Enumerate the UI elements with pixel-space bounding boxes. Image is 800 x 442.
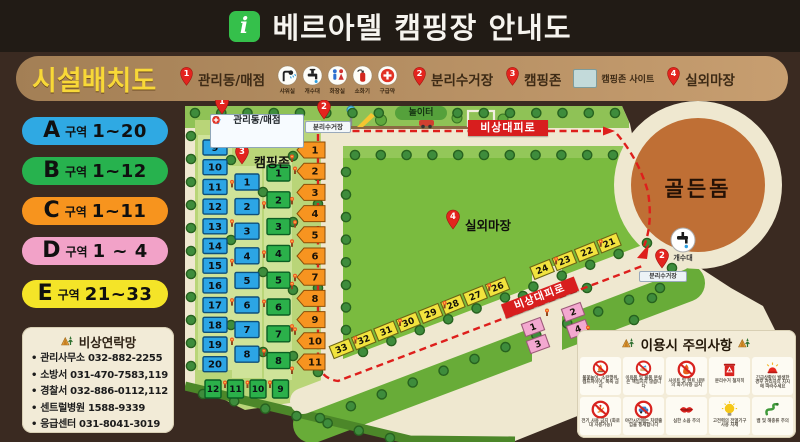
svg-text:1: 1 bbox=[244, 178, 251, 189]
site-sample-label: 캠핑존 사이트 bbox=[601, 72, 654, 85]
zone-suffix: 구역 bbox=[65, 123, 87, 140]
caution-caption: 고전력의 전열기구 사용 자제 bbox=[710, 419, 748, 428]
facility-item: 화장실 bbox=[325, 65, 349, 95]
zone-key-item-C: C구역1~11 bbox=[22, 197, 168, 225]
svg-text:11: 11 bbox=[208, 182, 222, 193]
no-fireworks-icon bbox=[591, 400, 610, 419]
recycle-station-top-label: 분리수거장 bbox=[305, 121, 351, 133]
map-pin-icon: 1 bbox=[179, 66, 194, 86]
zone-range: 1 ~ 4 bbox=[93, 241, 148, 262]
legend-heading: 시설배치도 bbox=[32, 56, 156, 101]
quiet-icon bbox=[677, 400, 696, 419]
svg-text:11: 11 bbox=[229, 385, 242, 395]
svg-text:7: 7 bbox=[244, 325, 251, 336]
map-pin-icon: 3 bbox=[505, 66, 520, 86]
facility-item: 개수대 bbox=[300, 65, 324, 95]
zone-letter: A bbox=[43, 120, 60, 142]
caution-item: 긴급상황이 발생한 경우 관리자의 지시에 따라주세요 bbox=[752, 357, 793, 395]
caution-caption: 불꽃놀이, 소란행위, 캠프파이어, 폭죽 금지 bbox=[581, 376, 619, 389]
svg-text:19: 19 bbox=[208, 340, 222, 351]
zone-letter: E bbox=[38, 283, 53, 305]
caution-caption: 긴급상황이 발생한 경우 관리자의 지시에 따라주세요 bbox=[753, 376, 791, 389]
svg-text:8: 8 bbox=[312, 294, 319, 305]
contact-list: • 관리사무소 032-882-2255• 소방서 031-470-7583,1… bbox=[22, 351, 174, 434]
legend-facility-icons: 샤워실 개수대 화장실 소화기 구급약 bbox=[275, 65, 400, 95]
office-box: 관리동/매점 bbox=[210, 114, 302, 146]
svg-text:20: 20 bbox=[208, 360, 222, 371]
zone-key-item-A: A구역1~20 bbox=[22, 117, 168, 145]
zone-range: 1~20 bbox=[92, 121, 147, 142]
svg-text:17: 17 bbox=[208, 301, 222, 312]
sink-icon bbox=[302, 65, 323, 86]
title-bar: i 베르아델 캠핑장 안내도 bbox=[0, 0, 800, 52]
svg-text:14: 14 bbox=[208, 242, 222, 253]
caution-item: 뱀 및 해충류 주의 bbox=[752, 397, 793, 435]
recycle-bin-icon bbox=[720, 360, 739, 379]
svg-text:10: 10 bbox=[308, 336, 322, 347]
legend-pin-item: 4실외마장 bbox=[666, 66, 735, 90]
svg-text:16: 16 bbox=[208, 281, 222, 292]
svg-text:4: 4 bbox=[275, 249, 282, 260]
site-4: 4 bbox=[235, 248, 259, 264]
campground-sign: i 베르아델 캠핑장 안내도 시설배치도 1관리동/매점 샤워실 개수대 화장실… bbox=[0, 0, 800, 442]
first-aid-icon bbox=[377, 65, 398, 86]
info-icon: i bbox=[229, 11, 260, 42]
site-10: 10 bbox=[250, 380, 266, 398]
legend-pin-item: 1관리동/매점 bbox=[179, 66, 265, 90]
map-pin-icon: 4 bbox=[666, 66, 681, 86]
emergency-contacts-panel: 비상연락망 • 관리사무소 032-882-2255• 소방서 031-470-… bbox=[22, 327, 174, 433]
recycle-top-text: 분리수거장 bbox=[305, 121, 351, 133]
zone-suffix: 구역 bbox=[66, 243, 88, 260]
contact-item: • 경찰서 032-886-0112,112 bbox=[31, 384, 174, 401]
site-14: 14 bbox=[203, 239, 227, 254]
svg-text:6: 6 bbox=[244, 301, 251, 312]
site-2: 2 bbox=[267, 192, 290, 208]
svg-text:1: 1 bbox=[219, 100, 225, 107]
svg-text:2: 2 bbox=[417, 68, 423, 78]
site-11: 11 bbox=[203, 179, 227, 194]
svg-text:5: 5 bbox=[244, 276, 251, 287]
campzone-label: 캠핑존 bbox=[254, 152, 290, 171]
caution-caption: 심한 소음 주의 bbox=[667, 419, 705, 423]
caution-caption: 뱀 및 해충류 주의 bbox=[753, 419, 791, 423]
caution-caption: 분리수거 철저히 bbox=[710, 379, 748, 383]
zone-range: 1~11 bbox=[92, 201, 147, 222]
legend-pin-label: 분리수거장 bbox=[431, 69, 493, 89]
toilet-icon bbox=[327, 65, 348, 86]
legend-pin-label: 관리동/매점 bbox=[198, 69, 265, 89]
svg-text:1: 1 bbox=[312, 146, 319, 157]
legend-pin-label: 실외마장 bbox=[685, 69, 735, 89]
legend-pin-label: 캠핑존 bbox=[524, 69, 561, 89]
svg-text:3: 3 bbox=[275, 222, 282, 233]
svg-text:6: 6 bbox=[312, 252, 319, 263]
caution-item: 야간시간에는 차량출입을 통제합니다 bbox=[623, 397, 664, 435]
zone-key-item-E: E구역21~33 bbox=[22, 280, 168, 308]
map-pin-icon: 2 bbox=[412, 66, 427, 86]
cautions-heading-text: 이용시 주의사항 bbox=[641, 334, 733, 354]
site-5: 5 bbox=[235, 272, 259, 288]
caution-item: 고전력의 전열기구 사용 자제 bbox=[709, 397, 750, 435]
legend-pin-item: 3캠핑존 bbox=[505, 66, 561, 90]
svg-text:4: 4 bbox=[450, 212, 456, 222]
facility-label: 소화기 bbox=[354, 86, 369, 94]
zone-suffix: 구역 bbox=[58, 286, 80, 303]
facility-label: 샤워실 bbox=[279, 86, 294, 94]
site-13: 13 bbox=[203, 219, 227, 234]
site-17: 17 bbox=[203, 298, 227, 313]
svg-text:3: 3 bbox=[312, 188, 319, 199]
legend-bar: 시설배치도 1관리동/매점 샤워실 개수대 화장실 소화기 구급약 2분리수거장… bbox=[16, 56, 788, 101]
svg-text:4: 4 bbox=[244, 251, 251, 262]
siren-icon bbox=[763, 360, 782, 376]
site-6: 6 bbox=[267, 299, 290, 315]
svg-text:15: 15 bbox=[208, 261, 222, 272]
zone-suffix: 구역 bbox=[65, 163, 87, 180]
zone-suffix: 구역 bbox=[65, 203, 87, 220]
svg-text:5: 5 bbox=[312, 230, 319, 241]
legend-items: 1관리동/매점 샤워실 개수대 화장실 소화기 구급약 2분리수거장 3캠핑존캠… bbox=[179, 56, 735, 101]
site-20: 20 bbox=[203, 357, 227, 372]
svg-text:10: 10 bbox=[208, 163, 222, 174]
zone-letter: D bbox=[42, 240, 60, 262]
site-19: 19 bbox=[203, 337, 227, 352]
tent-trees-icon bbox=[737, 335, 752, 354]
facility-label: 화장실 bbox=[329, 86, 344, 94]
facility-item: 샤워실 bbox=[275, 65, 299, 95]
bulb-icon bbox=[720, 400, 739, 419]
recycle-station-right-label: 분리수거장 bbox=[639, 271, 687, 282]
zone-key-item-D: D구역1 ~ 4 bbox=[22, 237, 168, 265]
svg-text:3: 3 bbox=[244, 227, 251, 238]
svg-text:1: 1 bbox=[184, 68, 190, 78]
contact-item: • 소방서 031-470-7583,119 bbox=[31, 368, 174, 385]
no-fire-icon bbox=[677, 360, 696, 379]
svg-text:18: 18 bbox=[208, 320, 222, 331]
site-1: 1 bbox=[235, 174, 259, 190]
no-campfire-icon bbox=[591, 360, 610, 376]
facility-item: 구급약 bbox=[375, 65, 399, 95]
contacts-heading: 비상연락망 bbox=[22, 332, 174, 351]
page-title: 베르아델 캠핑장 안내도 bbox=[273, 5, 572, 47]
zone-letter: C bbox=[44, 200, 60, 222]
caution-caption: 사이트 및 텐트 내부의 화기사용 금지 bbox=[667, 379, 705, 388]
legend-pin-item: 2분리수거장 bbox=[412, 66, 493, 90]
sink-label: 개수대 bbox=[663, 253, 703, 263]
site-11: 11 bbox=[228, 380, 244, 398]
svg-text:3: 3 bbox=[510, 68, 516, 78]
site-8: 8 bbox=[235, 346, 259, 362]
tent-icon bbox=[621, 335, 636, 350]
svg-text:11: 11 bbox=[308, 358, 322, 369]
site-10: 10 bbox=[203, 160, 227, 175]
tent-icon bbox=[60, 333, 75, 348]
site-4: 4 bbox=[267, 245, 290, 261]
site-18: 18 bbox=[203, 317, 227, 332]
svg-text:6: 6 bbox=[275, 303, 282, 314]
site-2: 2 bbox=[235, 199, 259, 215]
facility-label: 개수대 bbox=[304, 86, 319, 94]
first-aid-icon bbox=[210, 114, 222, 126]
caution-caption: 야간시간에는 차량출입을 통제합니다 bbox=[624, 419, 662, 428]
svg-text:4: 4 bbox=[312, 209, 319, 220]
site-sample-swatch bbox=[573, 69, 597, 88]
site-7: 7 bbox=[235, 322, 259, 338]
tent-icon bbox=[737, 335, 752, 350]
contact-item: • 센트럴병원 1588-9339 bbox=[31, 401, 174, 418]
caution-grid: 불꽃놀이, 소란행위, 캠프파이어, 폭죽 금지이용품 및 물품 분실은 책임지… bbox=[577, 357, 796, 435]
playground-label: 놀이터 bbox=[395, 106, 447, 120]
svg-text:12: 12 bbox=[207, 385, 220, 395]
site-9: 9 bbox=[273, 380, 289, 398]
caution-item: 분리수거 철저히 bbox=[709, 357, 750, 395]
snake-icon bbox=[763, 400, 782, 419]
svg-text:8: 8 bbox=[275, 356, 282, 367]
evac-route-banner-top: 비상대피로 bbox=[468, 120, 548, 136]
site-12: 12 bbox=[205, 380, 221, 398]
svg-text:4: 4 bbox=[671, 68, 677, 78]
outdoor-field-label: 실외마장 bbox=[465, 215, 511, 234]
site-15: 15 bbox=[203, 258, 227, 273]
site-3: 3 bbox=[235, 223, 259, 239]
caution-caption: 전기 사용 금지 (화로대 사용가능) bbox=[581, 419, 619, 428]
site-3: 3 bbox=[267, 219, 290, 235]
caution-item: 이용품 및 물품 분실은 책임지지 않습니다 bbox=[623, 357, 664, 395]
facility-label: 구급약 bbox=[379, 86, 394, 94]
svg-text:5: 5 bbox=[275, 276, 282, 287]
cautions-heading: 이용시 주의사항 bbox=[577, 334, 796, 354]
contact-item: • 응급센터 031-8041-3019 bbox=[31, 417, 174, 434]
svg-text:3: 3 bbox=[239, 147, 245, 157]
caution-caption: 이용품 및 물품 분실은 책임지지 않습니다 bbox=[624, 376, 662, 389]
facility-item: 소화기 bbox=[350, 65, 374, 95]
legend-site-sample: 캠핑존 사이트 bbox=[573, 69, 654, 88]
tent-icon bbox=[60, 333, 75, 351]
svg-text:2: 2 bbox=[244, 202, 251, 213]
site-8: 8 bbox=[267, 353, 290, 369]
caution-item: 불꽃놀이, 소란행위, 캠프파이어, 폭죽 금지 bbox=[580, 357, 621, 395]
svg-text:2: 2 bbox=[275, 195, 282, 206]
site-16: 16 bbox=[203, 278, 227, 293]
svg-text:9: 9 bbox=[312, 315, 319, 326]
svg-text:12: 12 bbox=[208, 202, 222, 213]
golden-dome-label: 골든돔 bbox=[648, 173, 748, 203]
site-5: 5 bbox=[267, 272, 290, 288]
fire-extinguisher-icon bbox=[352, 65, 373, 86]
no-car-icon bbox=[634, 400, 653, 419]
zone-range: 21~33 bbox=[85, 284, 153, 305]
zone-key-item-B: B구역1~12 bbox=[22, 157, 168, 185]
svg-text:2: 2 bbox=[321, 102, 327, 112]
caution-item: 심한 소음 주의 bbox=[666, 397, 707, 435]
no-theft-icon bbox=[634, 360, 653, 376]
caution-item: 전기 사용 금지 (화로대 사용가능) bbox=[580, 397, 621, 435]
cautions-panel: 이용시 주의사항 불꽃놀이, 소란행위, 캠프파이어, 폭죽 금지이용품 및 물… bbox=[577, 330, 796, 438]
svg-text:13: 13 bbox=[208, 222, 222, 233]
site-12: 12 bbox=[203, 199, 227, 214]
svg-text:7: 7 bbox=[275, 329, 282, 340]
svg-text:7: 7 bbox=[312, 273, 319, 284]
contact-item: • 관리사무소 032-882-2255 bbox=[31, 351, 174, 368]
site-7: 7 bbox=[267, 326, 290, 342]
svg-text:8: 8 bbox=[244, 350, 251, 361]
shower-icon bbox=[277, 65, 298, 86]
svg-text:9: 9 bbox=[277, 385, 283, 395]
svg-text:2: 2 bbox=[312, 167, 319, 178]
svg-text:10: 10 bbox=[252, 385, 265, 395]
site-6: 6 bbox=[235, 297, 259, 313]
caution-item: 사이트 및 텐트 내부의 화기사용 금지 bbox=[666, 357, 707, 395]
tent-trees-icon bbox=[621, 335, 636, 354]
zone-range: 1~12 bbox=[92, 161, 147, 182]
contacts-heading-text: 비상연락망 bbox=[79, 332, 137, 351]
office-label: 관리동/매점 bbox=[211, 115, 303, 127]
zone-letter: B bbox=[43, 160, 60, 182]
